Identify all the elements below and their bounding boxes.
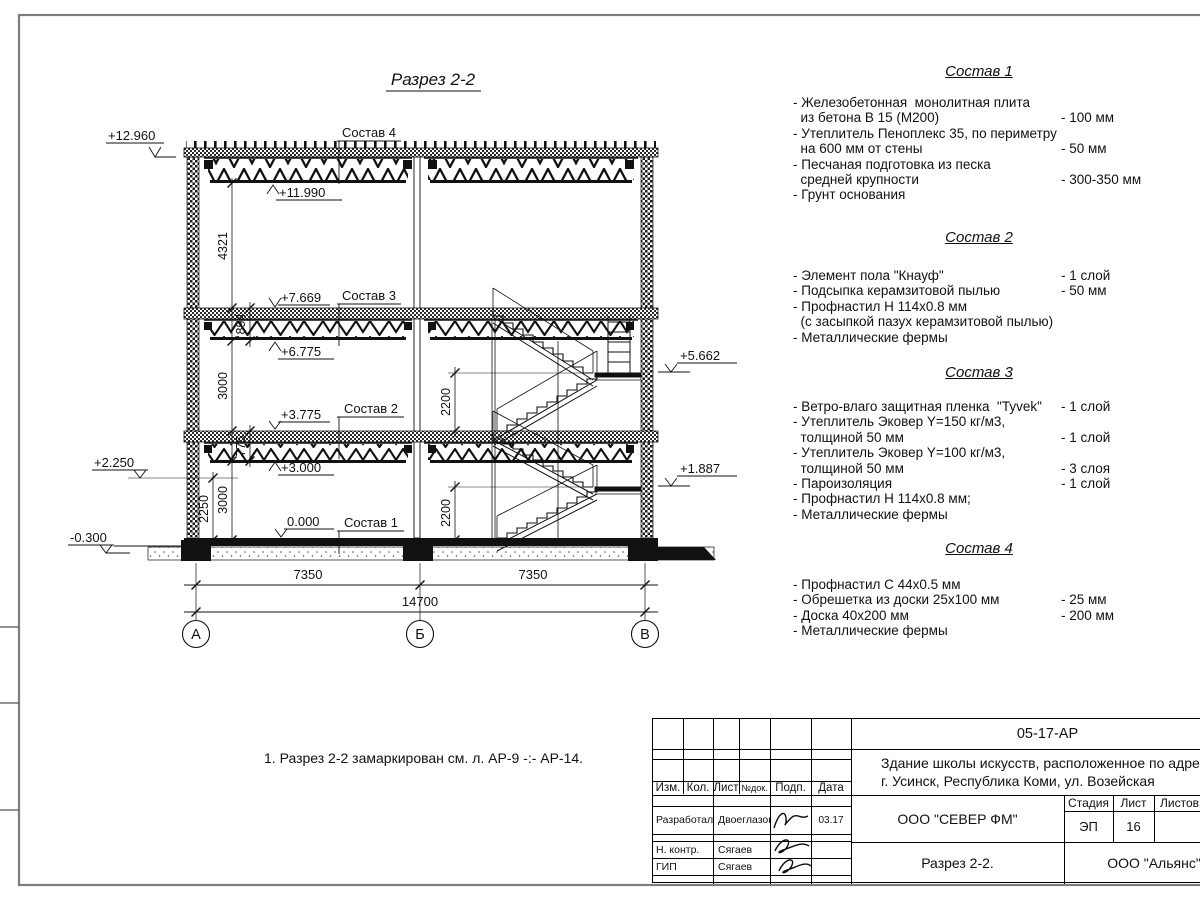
floor-2-assembly [184, 431, 658, 463]
name-developer: Двоеглазов [718, 806, 770, 834]
elev-7669: +7.669 [281, 290, 321, 305]
material-line: на 600 мм от стены [793, 141, 922, 156]
material-line: - Обрешетка из доски 25х100 мм [793, 592, 999, 607]
drawing-sheet: Разрез 2-2 [0, 0, 1200, 900]
col-izm: Изм. [653, 781, 683, 795]
doc-number: 05-17-АР [851, 719, 1200, 749]
elev-1887: +1.887 [680, 461, 720, 476]
wall-left [187, 148, 199, 540]
column-axis-b [414, 157, 420, 538]
floor-3-assembly [184, 308, 658, 340]
dim-7350-right: 7350 [519, 567, 548, 582]
col-podp: Подп. [770, 781, 811, 795]
material-line: - Доска 40х200 мм [793, 608, 909, 623]
sheet-note: 1. Разрез 2-2 замаркирован см. л. АР-9 -… [264, 750, 583, 766]
horizontal-dimensions: 7350 7350 14700 А Б В [183, 563, 659, 648]
contractor-org: ООО "Альянс" [1064, 842, 1200, 884]
signature-developer [771, 808, 811, 834]
stage-label: Стадия [1064, 795, 1113, 811]
dim-3000-lower: 3000 [216, 486, 230, 514]
dim-7350-left: 7350 [294, 567, 323, 582]
name-ncontrol: Сягаев [718, 841, 770, 858]
material-line: - Подсыпка керамзитовой пылью [793, 283, 1000, 298]
material-value: - 100 мм [1061, 110, 1114, 125]
view-title: Разрез 2-2 [386, 70, 481, 91]
dim-2200-upper: 2200 [439, 388, 453, 416]
callout-sostav-3: Состав 3 [342, 288, 396, 303]
elev-0000: 0.000 [287, 514, 320, 529]
material-value: - 50 мм [1061, 283, 1107, 298]
material-value: - 1 слой [1061, 268, 1110, 283]
dim-4321: 4321 [216, 232, 230, 260]
stage-value: ЭП [1064, 811, 1113, 842]
callout-sostav-4: Состав 4 [342, 125, 396, 140]
material-line: - Железобетонная монолитная плита [793, 95, 1030, 110]
material-line: из бетона В 15 (М200) [793, 110, 939, 125]
col-list: Лист [713, 781, 739, 795]
material-line: - Металлические фермы [793, 507, 948, 522]
material-line: - Профнастил Н 114х0.8 мм; [793, 491, 971, 506]
elev-3775: +3.775 [281, 407, 321, 422]
signature-gip [769, 837, 815, 881]
sostav-1-title: Состав 1 [793, 62, 1165, 81]
callout-sostav-2: Состав 2 [344, 401, 398, 416]
sheet-number: 16 [1113, 811, 1154, 842]
dim-14700: 14700 [402, 594, 438, 609]
material-line: - Утеплитель Эковер Y=150 кг/м3, [793, 414, 1005, 429]
wall-right [641, 148, 653, 540]
material-value: - 50 мм [1061, 141, 1107, 156]
material-line: средней крупности [793, 172, 919, 187]
ground-floor-assembly [114, 538, 716, 561]
material-line: - Металлические фермы [793, 330, 948, 345]
material-line: - Металлические фермы [793, 623, 948, 638]
material-line: толщиной 50 мм [793, 430, 904, 445]
material-line: - Профнастил С 44х0.5 мм [793, 577, 960, 592]
axis-b: Б [415, 627, 425, 643]
material-line: - Утеплитель Пеноплекс 35, по периметру [793, 126, 1057, 141]
material-line: - Пароизоляция [793, 476, 892, 491]
col-doc: №док. [739, 781, 770, 795]
sostav-3-title: Состав 3 [793, 363, 1165, 382]
col-data: Дата [811, 781, 851, 795]
sheets-label: Листов [1154, 795, 1200, 811]
dim-775: 775 [234, 436, 248, 457]
material-line: - Грунт основания [793, 187, 905, 202]
sostav-3-list: Состав 3 - Ветро-влаго защитная пленка "… [793, 363, 1165, 522]
axis-markers: А Б В [183, 621, 659, 648]
elev-6775: +6.775 [281, 344, 321, 359]
dim-2250: 2250 [197, 495, 211, 523]
material-line: - Профнастил Н 114х0.8 мм [793, 299, 967, 314]
elev-5662: +5.662 [680, 348, 720, 363]
material-line: толщиной 50 мм [793, 461, 904, 476]
sostav-2-title: Состав 2 [793, 228, 1165, 247]
material-line: - Утеплитель Эковер Y=100 кг/м3, [793, 445, 1005, 460]
sheet-label: Лист [1113, 795, 1154, 811]
elev-11990: +11.990 [279, 185, 325, 200]
elev-12960: +12.960 [108, 128, 155, 143]
material-value: - 25 мм [1061, 592, 1107, 607]
project-line-2: г. Усинск, Республика Коми, ул. Возейска… [881, 773, 1200, 791]
vertical-dimensions: 4321 3000 3000 894 775 2250 2200 2200 [128, 178, 460, 546]
title-block: Изм. Кол. Лист №док. Подп. Дата Разработ… [652, 718, 1200, 883]
dim-3000-upper: 3000 [216, 372, 230, 400]
roof-assembly [184, 141, 658, 183]
sostav-2-list: Состав 2 - Элемент пола "Кнауф"- 1 слой … [793, 228, 1165, 345]
material-value: - 1 слой [1061, 430, 1110, 445]
sostav-4-list: Состав 4 - Профнастил С 44х0.5 мм - Обре… [793, 539, 1165, 639]
material-line: - Ветро-влаго защитная пленка "Tyvek" [793, 399, 1042, 414]
sostav-4-title: Состав 4 [793, 539, 1165, 558]
role-ncontrol: Н. контр. [656, 841, 713, 858]
material-value: - 1 слой [1061, 399, 1110, 414]
elev-2250: +2.250 [94, 455, 134, 470]
role-developer: Разработал [656, 806, 713, 834]
callout-sostav-1: Состав 1 [344, 515, 398, 530]
dim-894: 894 [234, 314, 248, 335]
material-value: - 200 мм [1061, 608, 1114, 623]
material-value: - 1 слой [1061, 476, 1110, 491]
material-line: (с засыпкой пазух керамзитовой пылью) [793, 314, 1053, 329]
elev-3000: +3.000 [281, 460, 321, 475]
elev-m0300: -0.300 [70, 530, 107, 545]
project-line-1: Здание школы искусств, расположенное по … [881, 755, 1200, 773]
axis-a: А [191, 627, 201, 643]
material-line: - Элемент пола "Кнауф" [793, 268, 944, 283]
role-gip: ГИП [656, 858, 713, 875]
view-title-text: Разрез 2-2 [391, 70, 476, 89]
date-developer: 03.17 [811, 806, 851, 834]
design-org: ООО "СЕВЕР ФМ" [851, 795, 1064, 842]
material-line: - Песчаная подготовка из песка [793, 157, 991, 172]
col-kol: Кол. [683, 781, 713, 795]
dim-2200-lower: 2200 [439, 499, 453, 527]
project-description: Здание школы искусств, расположенное по … [881, 755, 1200, 790]
material-value: - 300-350 мм [1061, 172, 1141, 187]
sheet-title: Разрез 2-2. [851, 842, 1064, 884]
material-value: - 3 слоя [1061, 461, 1110, 476]
sostav-1-list: Состав 1 - Железобетонная монолитная пли… [793, 62, 1165, 203]
name-gip: Сягаев [718, 858, 770, 875]
axis-v: В [640, 627, 650, 643]
